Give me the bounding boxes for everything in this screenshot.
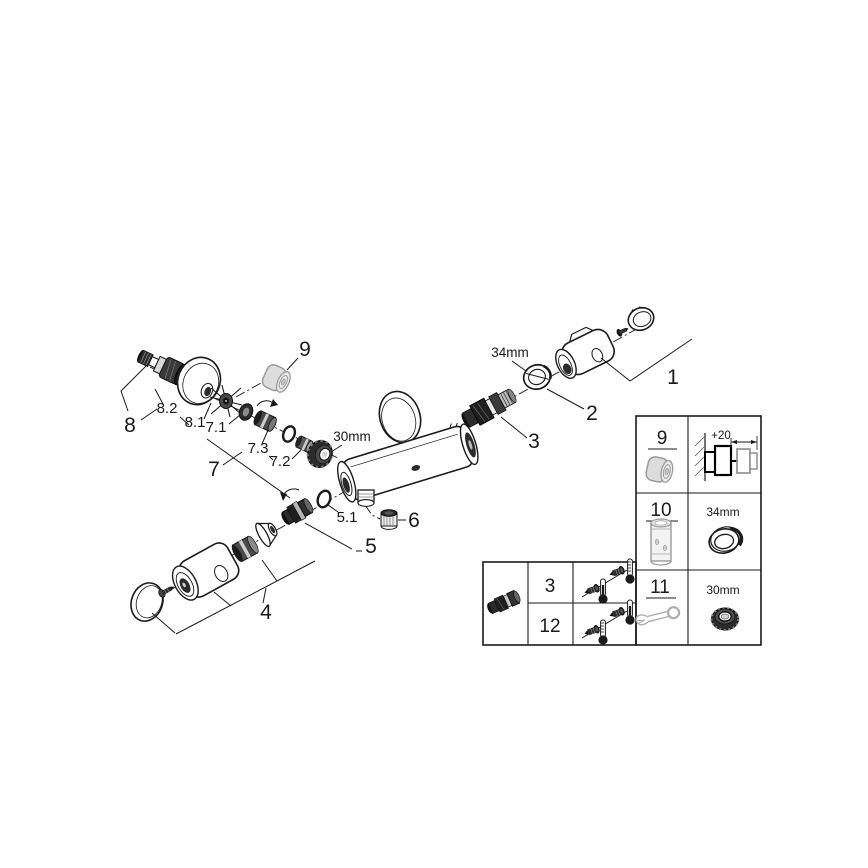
part-7-3-check-valve [252, 410, 278, 433]
label-part-9: 9 [299, 338, 311, 361]
leader-7-1 [229, 415, 240, 424]
label-part-5: 5 [365, 535, 377, 558]
label-sub-7-3: 7.3 [248, 440, 269, 457]
stair-7 [223, 452, 242, 465]
o-ring-7 [281, 425, 297, 444]
accessory-row-11-dim: 30mm [706, 583, 739, 597]
label-sub-8-2: 8.2 [157, 400, 178, 417]
label-part-2: 2 [586, 402, 598, 425]
rotate-arrow-7-3 [257, 401, 273, 406]
label-part-3: 3 [528, 430, 540, 453]
accessory-row-10-dim: 34mm [706, 505, 739, 519]
extension-detail: +20 [695, 430, 757, 481]
label-dim-34mm: 34mm [491, 345, 529, 360]
adjustment-row-3-ref: 3 [545, 576, 556, 597]
fitting-black-small [705, 452, 715, 472]
rotate-arrowhead-7-3 [270, 399, 278, 407]
tick-4b [214, 592, 231, 606]
exploded-parts-diagram: 8 8.2 8.1 7.1 7 7.3 7.2 30mm 9 34mm 3 2 … [0, 0, 868, 868]
screw-icon [608, 606, 626, 620]
label-part-6: 6 [408, 509, 420, 532]
cartridge-icon [485, 589, 522, 617]
screw-icon [608, 565, 626, 579]
leader-34mm [512, 361, 526, 371]
extension-tube-icon [651, 519, 671, 565]
thermometer-icon [625, 600, 634, 625]
adjustment-row-12-ref: 12 [539, 616, 560, 637]
nut-30mm-icon [712, 608, 739, 630]
part-5-aquadimmer-cartridge [278, 496, 315, 528]
part-1-screw [615, 325, 630, 338]
label-sub-7-1: 7.1 [206, 419, 227, 436]
diagram-canvas: 8 8.2 8.1 7.1 7 7.3 7.2 30mm 9 34mm 3 2 … [0, 0, 868, 868]
part-9-cap [260, 363, 293, 396]
fitting-grey-small [750, 453, 757, 469]
leader-2 [547, 389, 584, 409]
leader-30mm [331, 445, 342, 452]
label-part-1: 1 [667, 366, 679, 389]
part-4-cap-disc [126, 578, 168, 625]
axis-part-6 [365, 505, 380, 519]
accessory-table: 9 +20 10 [635, 416, 761, 645]
label-sub-7-2: 7.2 [270, 453, 291, 470]
tick-4a [152, 613, 175, 633]
accessory-row-9-ref: 9 [657, 428, 668, 449]
label-sub-8-1: 8.1 [185, 414, 206, 431]
bracket-5 [305, 523, 352, 549]
wrench-icon [635, 606, 680, 627]
part-8-escutcheon [171, 351, 228, 411]
adjustment-table: 3 12 [483, 559, 636, 645]
leader-3 [501, 417, 527, 438]
accessory-row-11-ref: 11 [650, 577, 670, 598]
stair-8 [141, 409, 157, 420]
part-4-volume-handle [167, 539, 243, 605]
part-4-screw [157, 583, 176, 598]
fitting-black-large [715, 446, 731, 475]
part-1-cover-cap [624, 303, 657, 334]
leader-9 [287, 358, 298, 370]
label-part-8: 8 [124, 414, 136, 437]
bracket-8 [121, 365, 147, 411]
accessory-row-9-dim: +20 [711, 430, 731, 442]
axis-cap-9 [236, 383, 261, 397]
label-part-7: 7 [208, 458, 220, 481]
leader-7-2 [292, 450, 301, 459]
adjustment-row-12-icons [582, 600, 635, 645]
fitting-grey-large [737, 449, 750, 473]
adjustment-row-3-icons [582, 559, 635, 604]
part-6-check-valve [381, 510, 397, 530]
body-shower-outlet [358, 490, 374, 506]
label-dim-30mm: 30mm [333, 429, 371, 444]
cap-icon [645, 456, 675, 485]
part-4-flange [253, 517, 281, 548]
accessory-row-10-ref: 10 [650, 500, 671, 521]
ring-34mm-icon [706, 524, 744, 557]
label-part-4: 4 [260, 601, 272, 624]
label-sub-5-1: 5.1 [337, 509, 358, 526]
part-2-stop-ring [520, 361, 554, 393]
tick-4c [262, 560, 277, 581]
